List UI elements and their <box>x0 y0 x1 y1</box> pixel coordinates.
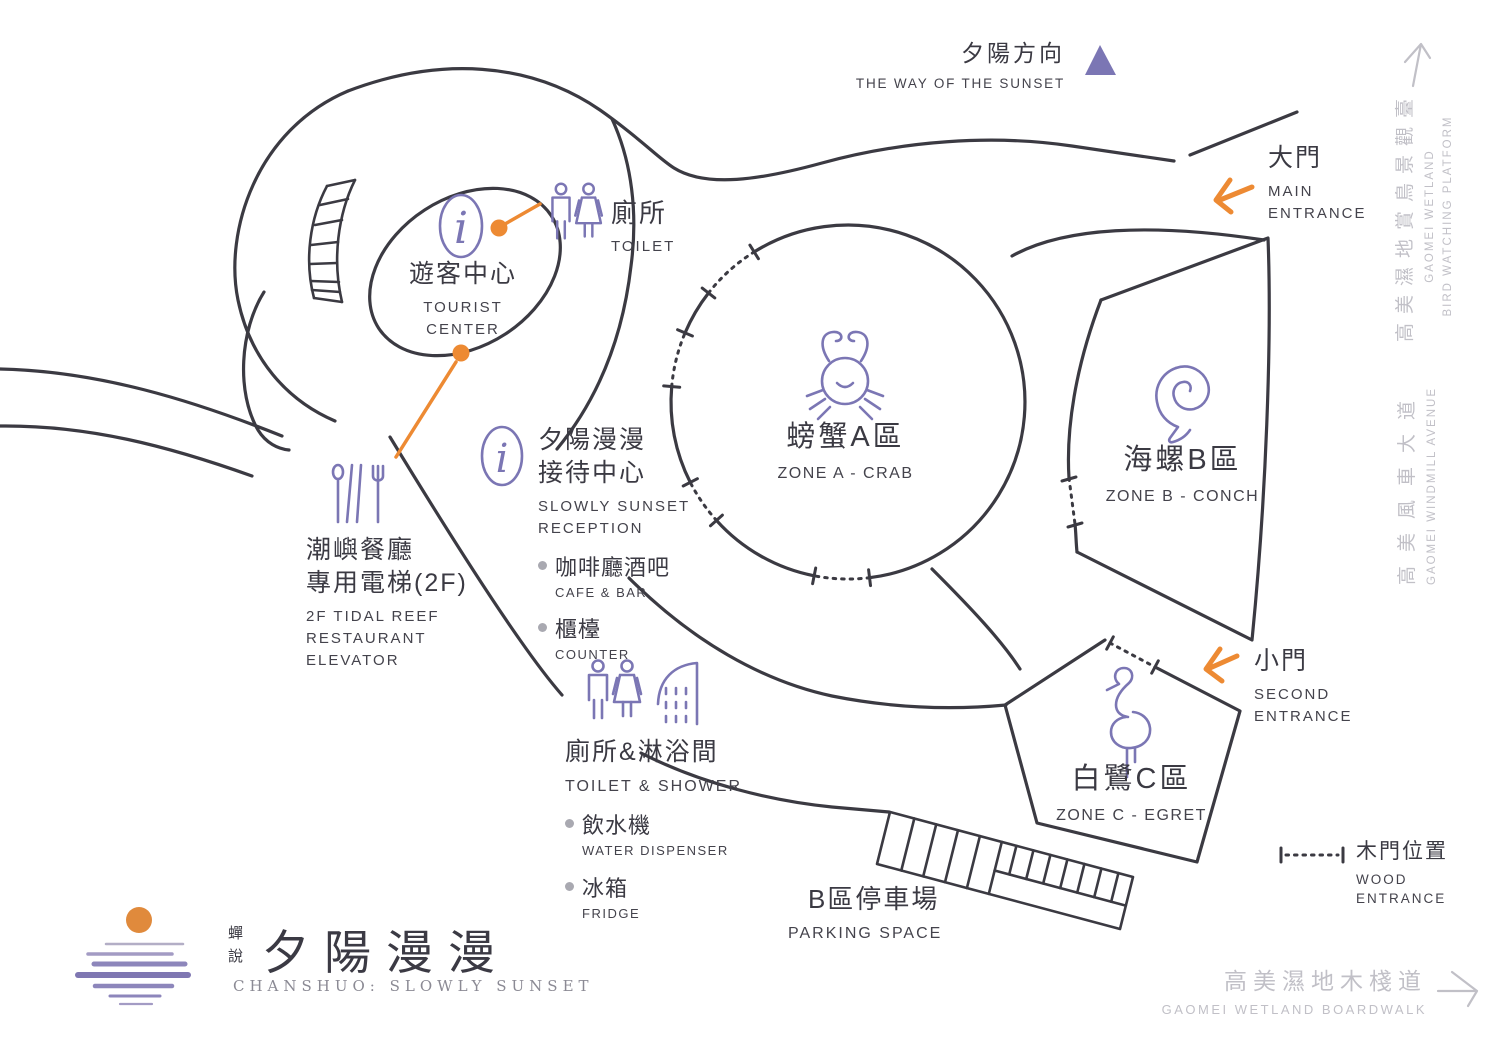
bird-platform-en: GAOMEI WETLAND BIRD WATCHING PLATFORM <box>1422 80 1458 352</box>
main-entrance-zh: 大門 <box>1268 142 1367 175</box>
tourist-center-label: 遊客中心 TOURIST CENTER <box>388 258 538 341</box>
counter-zh: 櫃檯 <box>555 615 630 644</box>
zone-b-en: ZONE B - CONCH <box>1095 485 1270 508</box>
fridge-zh: 冰箱 <box>582 874 640 903</box>
windmill-avenue-zh: 高美風車大道 <box>1392 360 1419 612</box>
cutlery-icon <box>333 465 383 522</box>
main-entrance-label: 大門 MAIN ENTRANCE <box>1268 142 1367 225</box>
stairs <box>309 180 355 302</box>
bullet-dot <box>538 561 547 570</box>
svg-text:i: i <box>496 436 509 482</box>
bird-platform-zh: 高美濕地賞鳥景觀臺 <box>1390 80 1417 352</box>
boardwalk-zh: 高美濕地木棧道 <box>1145 962 1427 996</box>
logo-subtitle: CHANSHUO: SLOWLY SUNSET <box>233 977 594 995</box>
cafe-bar-zh: 咖啡廳酒吧 <box>555 553 670 582</box>
toilet-shower-item-fridge: 冰箱 FRIDGE <box>565 874 742 924</box>
sunset-direction-zh: 夕陽方向 <box>815 38 1065 68</box>
zone-b-label: 海螺B區 ZONE B - CONCH <box>1095 441 1270 508</box>
zone-b-zh: 海螺B區 <box>1095 441 1270 479</box>
boardwalk-en: GAOMEI WETLAND BOARDWALK <box>1145 1002 1427 1017</box>
svg-text:i: i <box>454 203 468 254</box>
crab-icon <box>807 332 883 419</box>
tourist-center-zh: 遊客中心 <box>388 258 538 291</box>
toilet-shower-item-water: 飲水機 WATER DISPENSER <box>565 811 742 861</box>
tourist-center-en: TOURIST CENTER <box>388 297 538 341</box>
parking-en: PARKING SPACE <box>788 922 942 945</box>
wood-entrance-zh: 木門位置 <box>1356 838 1448 866</box>
second-entrance-label: 小門 SECOND ENTRANCE <box>1254 645 1353 728</box>
bullet-dot <box>565 819 574 828</box>
toilet-zh: 廁所 <box>611 196 675 230</box>
reception-info-icon: i <box>482 427 522 485</box>
reception-item-cafe: 咖啡廳酒吧 CAFE & BAR <box>538 553 690 603</box>
zone-c-label: 白鷺C區 ZONE C - EGRET <box>1044 760 1219 827</box>
reception-item-counter: 櫃檯 COUNTER <box>538 615 690 665</box>
second-entrance-arrow-icon <box>1206 649 1237 681</box>
water-dispenser-zh: 飲水機 <box>582 811 729 840</box>
sunset-direction-en: THE WAY OF THE SUNSET <box>815 74 1065 94</box>
toilet-shower-en: TOILET & SHOWER <box>565 775 742 798</box>
toilet-shower-label: 廁所&淋浴間 TOILET & SHOWER 飲水機 WATER DISPENS… <box>565 736 742 924</box>
toilet-shower-icon <box>589 661 697 725</box>
zone-a-zh: 螃蟹A區 <box>758 418 933 456</box>
conch-icon <box>1156 366 1208 442</box>
elevator-zh: 潮嶼餐廳 專用電梯(2F) <box>306 534 468 600</box>
wood-entrance-en: WOOD ENTRANCE <box>1356 870 1448 909</box>
toilet-icon <box>552 184 601 239</box>
toilet-shower-zh: 廁所&淋浴間 <box>565 736 742 769</box>
pointer-tourist-toilet <box>491 204 541 237</box>
water-dispenser-en: WATER DISPENSER <box>582 842 729 861</box>
sunset-triangle-icon <box>1085 45 1116 75</box>
pointer-tourist-elevator <box>396 345 470 458</box>
tourist-center-info-icon: i <box>440 195 482 257</box>
zone-b-boundary <box>1062 238 1269 640</box>
sunset-direction-label: 夕陽方向 THE WAY OF THE SUNSET <box>815 38 1065 94</box>
bullet-dot <box>538 623 547 632</box>
zone-a-en: ZONE A - CRAB <box>758 462 933 485</box>
zone-a-label: 螃蟹A區 ZONE A - CRAB <box>758 418 933 485</box>
main-entrance-arrow-icon <box>1216 180 1252 212</box>
right-arrow-icon <box>1438 972 1477 1006</box>
wood-entrance-legend <box>1281 848 1343 862</box>
parking-zh: B區停車場 <box>808 882 942 916</box>
toilet-en: TOILET <box>611 236 675 258</box>
parking-label: B區停車場 PARKING SPACE <box>788 882 942 946</box>
zone-c-zh: 白鷺C區 <box>1044 760 1219 798</box>
bullet-dot <box>565 882 574 891</box>
logo-sun-water-icon <box>78 907 188 1004</box>
fridge-en: FRIDGE <box>582 905 640 924</box>
logo-title: 夕陽漫漫 <box>262 914 510 983</box>
logo-brand: 蟬說 <box>228 922 246 967</box>
reception-en: SLOWLY SUNSET RECEPTION <box>538 496 690 540</box>
site-map: i i <box>0 0 1500 1049</box>
windmill-avenue-en: GAOMEI WINDMILL AVENUE <box>1424 360 1442 612</box>
wood-entrance-label: 木門位置 WOOD ENTRANCE <box>1356 838 1448 909</box>
bird-platform-label: 高美濕地賞鳥景觀臺 GAOMEI WETLAND BIRD WATCHING P… <box>1390 80 1458 352</box>
second-entrance-en: SECOND ENTRANCE <box>1254 684 1353 728</box>
toilet-label: 廁所 TOILET <box>611 196 675 258</box>
counter-en: COUNTER <box>555 646 630 665</box>
elevator-en: 2F TIDAL REEF RESTAURANT ELEVATOR <box>306 606 468 671</box>
reception-zh: 夕陽漫漫 接待中心 <box>538 424 690 490</box>
main-entrance-en: MAIN ENTRANCE <box>1268 181 1367 225</box>
boardwalk-label: 高美濕地木棧道 GAOMEI WETLAND BOARDWALK <box>1145 962 1427 1017</box>
zone-a-boundary <box>664 225 1025 586</box>
cafe-bar-en: CAFE & BAR <box>555 584 670 603</box>
shower-icon <box>658 663 697 724</box>
elevator-label: 潮嶼餐廳 專用電梯(2F) 2F TIDAL REEF RESTAURANT E… <box>306 534 468 671</box>
reception-label: 夕陽漫漫 接待中心 SLOWLY SUNSET RECEPTION 咖啡廳酒吧 … <box>538 424 690 665</box>
zone-c-en: ZONE C - EGRET <box>1044 804 1219 827</box>
second-entrance-zh: 小門 <box>1254 645 1353 678</box>
windmill-avenue-label: 高美風車大道 GAOMEI WINDMILL AVENUE <box>1392 360 1442 612</box>
